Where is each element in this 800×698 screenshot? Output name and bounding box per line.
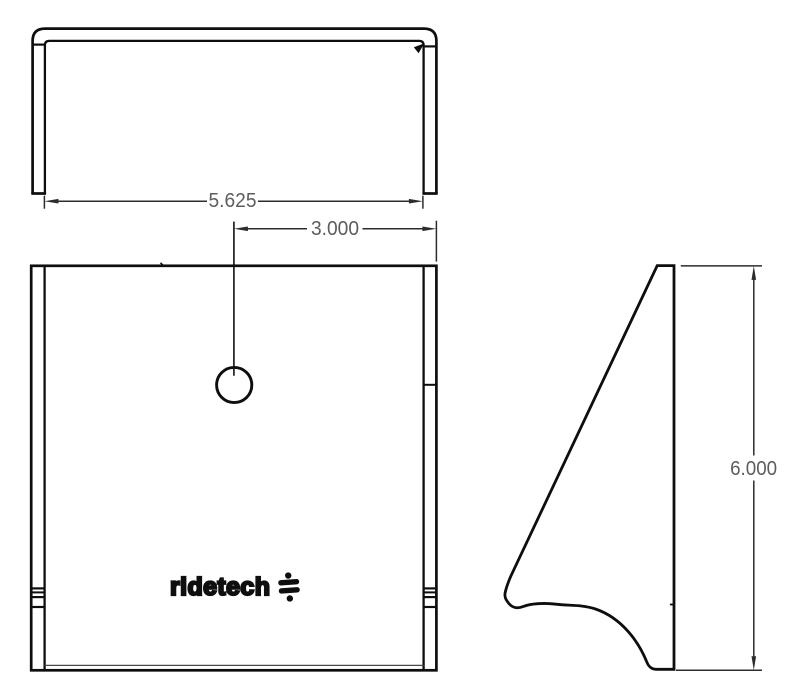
svg-text:ridetech: ridetech xyxy=(170,573,270,601)
svg-text:3.000: 3.000 xyxy=(311,218,359,240)
svg-text:5.625: 5.625 xyxy=(209,190,257,212)
svg-text:6.000: 6.000 xyxy=(730,458,777,480)
